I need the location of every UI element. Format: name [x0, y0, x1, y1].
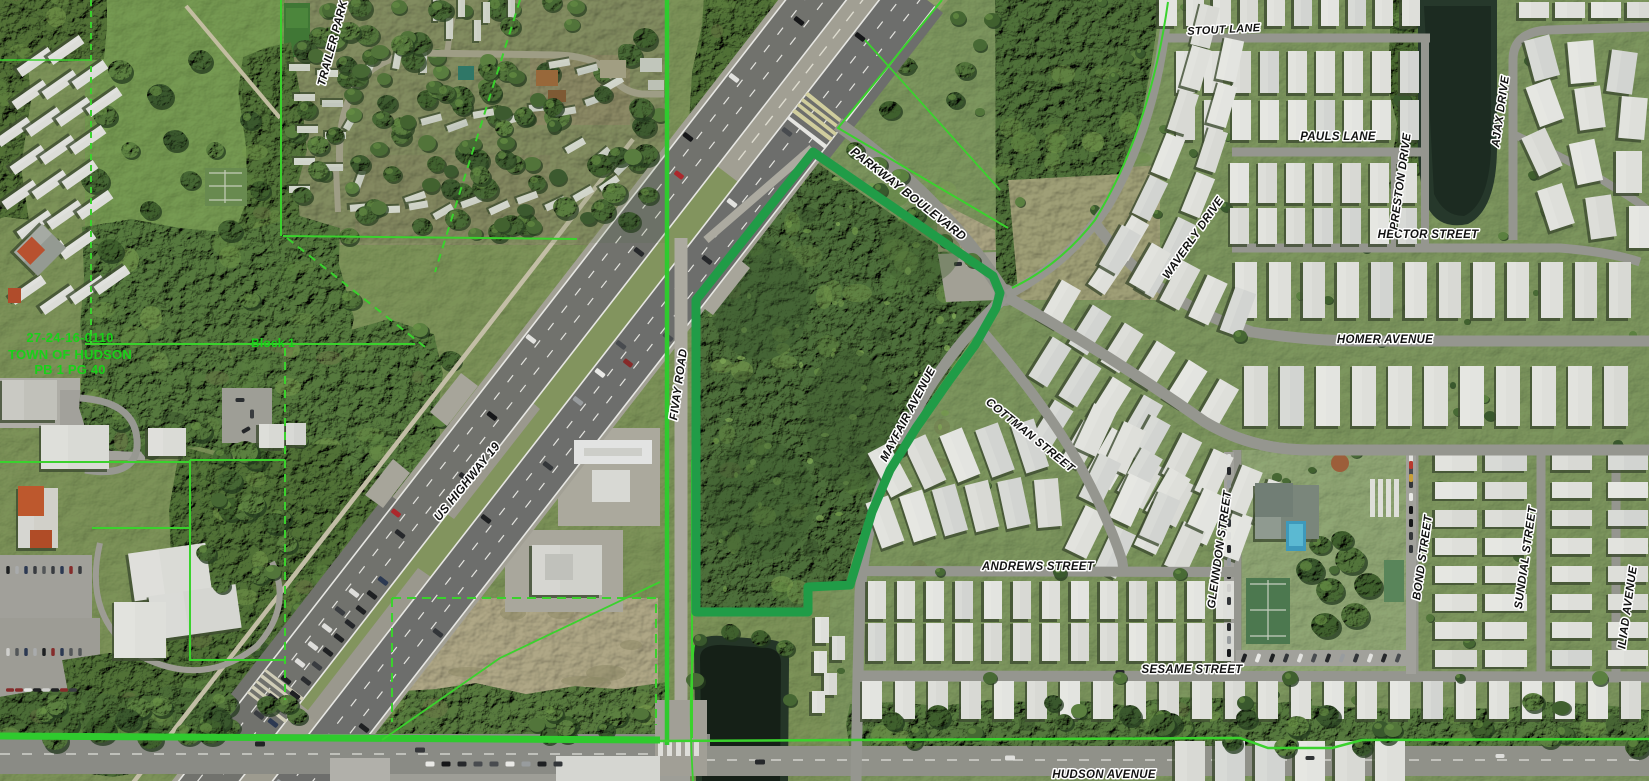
- svg-text:PAULS LANE: PAULS LANE: [1300, 131, 1376, 143]
- svg-text:ANDREWS STREET: ANDREWS STREET: [981, 561, 1095, 573]
- svg-text:PB 1 PG 40: PB 1 PG 40: [34, 362, 105, 377]
- svg-text:SESAME STREET: SESAME STREET: [1141, 664, 1243, 676]
- svg-text:HUDSON AVENUE: HUDSON AVENUE: [1052, 769, 1156, 781]
- svg-text:27-24-16-0110: 27-24-16-0110: [26, 330, 113, 345]
- svg-text:HOMER AVENUE: HOMER AVENUE: [1337, 334, 1433, 346]
- svg-text:TOWN OF HUDSON: TOWN OF HUDSON: [8, 347, 132, 362]
- svg-text:Block 1: Block 1: [251, 336, 295, 350]
- svg-text:HECTOR STREET: HECTOR STREET: [1378, 229, 1479, 241]
